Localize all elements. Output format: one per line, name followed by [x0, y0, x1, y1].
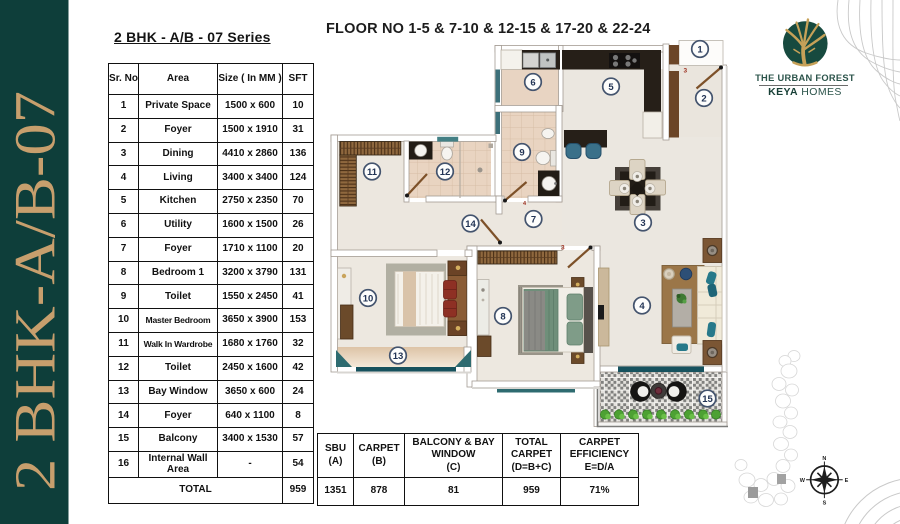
svg-text:E: E — [845, 478, 849, 484]
svg-text:S: S — [823, 501, 827, 507]
svg-text:4: 4 — [639, 301, 645, 312]
svg-text:9: 9 — [519, 147, 524, 158]
svg-text:1: 1 — [697, 44, 703, 55]
svg-text:15: 15 — [702, 394, 713, 405]
svg-text:14: 14 — [465, 219, 476, 230]
svg-text:6: 6 — [530, 77, 535, 88]
svg-text:12: 12 — [440, 167, 451, 178]
svg-text:13: 13 — [393, 351, 404, 362]
svg-text:3: 3 — [684, 68, 688, 75]
svg-text:W: W — [800, 478, 806, 484]
svg-text:10: 10 — [363, 293, 374, 304]
svg-text:5: 5 — [608, 82, 614, 93]
svg-text:8: 8 — [500, 311, 505, 322]
svg-text:7: 7 — [531, 214, 536, 225]
svg-text:3: 3 — [561, 245, 565, 252]
svg-text:2: 2 — [701, 93, 706, 104]
svg-text:11: 11 — [367, 167, 378, 178]
svg-text:N: N — [822, 456, 826, 462]
svg-text:3: 3 — [640, 218, 645, 229]
svg-text:2 BHK-A/B-07: 2 BHK-A/B-07 — [3, 91, 68, 491]
